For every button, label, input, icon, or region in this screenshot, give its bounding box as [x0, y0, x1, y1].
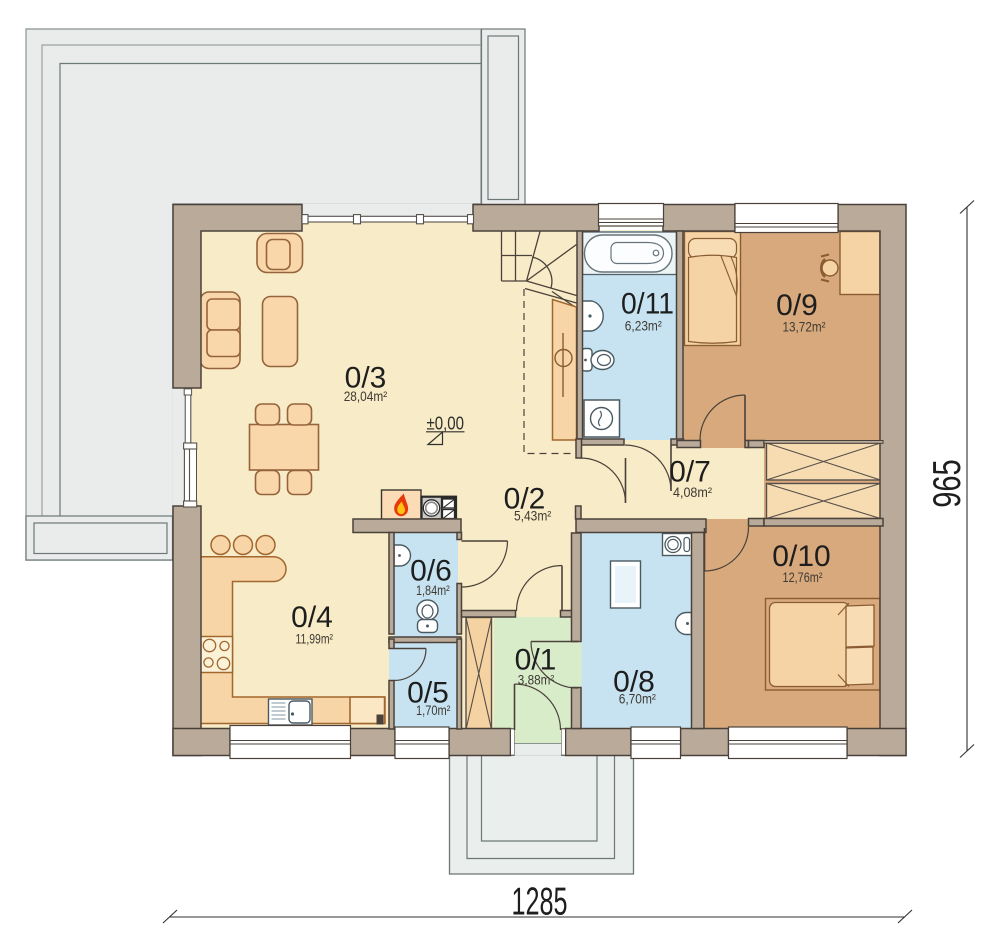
svg-text:28,04m²: 28,04m² — [344, 388, 388, 404]
svg-text:±0,00: ±0,00 — [427, 414, 465, 434]
svg-text:13,72m²: 13,72m² — [783, 319, 826, 335]
svg-text:6,70m²: 6,70m² — [619, 691, 656, 707]
svg-text:5,43m²: 5,43m² — [514, 508, 552, 524]
svg-text:0/9: 0/9 — [776, 289, 818, 322]
svg-text:0/11: 0/11 — [621, 288, 674, 321]
svg-text:1285: 1285 — [512, 881, 568, 924]
svg-text:11,99m²: 11,99m² — [296, 631, 334, 647]
svg-text:12,76m²: 12,76m² — [783, 569, 823, 585]
svg-text:3,88m²: 3,88m² — [518, 672, 555, 688]
svg-text:0/4: 0/4 — [291, 601, 333, 634]
svg-text:965: 965 — [926, 459, 969, 508]
svg-text:1,84m²: 1,84m² — [416, 582, 450, 598]
svg-text:6,23m²: 6,23m² — [625, 318, 662, 334]
svg-text:1,70m²: 1,70m² — [416, 702, 451, 718]
svg-text:4,08m²: 4,08m² — [673, 484, 712, 500]
